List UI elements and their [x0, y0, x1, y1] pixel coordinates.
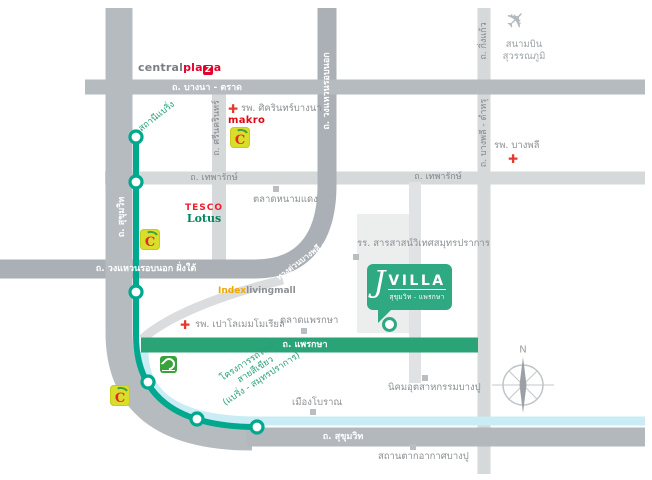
bts-station-icon — [130, 176, 142, 188]
central-plaza-text-red2: a — [214, 61, 222, 74]
central-plaza-text-red: pla — [183, 61, 203, 74]
central-plaza-text: central — [138, 61, 183, 74]
airport-label-line2: สุวรรณภูมิ — [489, 51, 559, 63]
road-label-sukhumvit-bottom: ถ. สุขุมวิท — [323, 432, 364, 442]
green-brand-underline — [162, 370, 175, 371]
landmark-marker — [301, 328, 307, 334]
big-c-store-icon: C — [140, 229, 160, 250]
makro-logo: makro — [228, 115, 265, 126]
road-label-bangna-trat: ถ. บางนา - ตราด — [172, 83, 242, 93]
red-cross-icon: ✚ — [508, 153, 518, 165]
namdaeng-market-label: ตลาดหนามแดง — [253, 195, 318, 206]
road-label-outer-ring-south: ถ. วงแหวนรอบนอก ฝั่งใต้ — [96, 264, 196, 274]
bts-station-icon — [142, 376, 154, 388]
central-plaza-logo: centralplaZa — [138, 61, 221, 75]
landmark-marker — [422, 375, 428, 381]
bts-station-icon — [130, 286, 142, 298]
airport-label-line1: สนามบิน — [489, 39, 559, 51]
red-cross-icon: ✚ — [228, 103, 238, 115]
road-label-kingkaew: ถ. กิ่งแก้ว — [479, 22, 489, 59]
jvilla-logo-subtitle: สุขุมวิท - แพรกษา — [389, 292, 444, 302]
index-text: Index — [218, 286, 246, 296]
tesco-lotus-logo: TESCO Lotus — [180, 204, 228, 224]
bts-station-icon — [130, 131, 142, 143]
compass-rose-icon — [488, 354, 558, 416]
red-cross-icon: ✚ — [180, 319, 190, 331]
jvilla-logo-textcol: VILLA สุขุมวิท - แพรกษา — [388, 274, 445, 302]
road-label-outer-ring: ถ. วงแหวนรอบนอก — [322, 52, 332, 129]
road-label-theparak-left: ถ. เทพารักษ์ — [190, 173, 237, 183]
jvilla-logo-bubble: J VILLA สุขุมวิท - แพรกษา — [367, 264, 452, 310]
jvilla-logo-name: VILLA — [388, 274, 445, 290]
ancient-city-label: เมืองโบราณ — [292, 398, 342, 409]
sikarin-hospital-label: รพ. ศิครินทร์บางนา — [241, 104, 322, 115]
livingmall-text: livingmall — [246, 286, 296, 296]
road-label-bangphli-tamru: ถ. บางพลี - ตำหรุ — [479, 99, 489, 167]
road-outer-ring — [0, 8, 327, 269]
central-plaza-z-icon: Z — [203, 65, 213, 75]
big-c-store-icon: C — [110, 385, 130, 406]
landmark-marker — [310, 409, 316, 415]
index-livingmall-logo: Indexlivingmall — [218, 286, 296, 296]
phraeksa-market-label: ตลาดแพรกษา — [280, 316, 338, 327]
road-label-srinakarin: ถ. ศรีนครินทร์ — [212, 100, 222, 156]
jvilla-location-pin — [382, 317, 397, 332]
bangphli-hospital-label: รพ. บางพลี — [494, 141, 540, 152]
bangpu-industrial-label: นิคมอุตสาหกรรมบางปู — [388, 383, 481, 394]
location-map: ถ. บางนา - ตราด ถ. ศรีนครินทร์ ถ. เทพารั… — [0, 0, 652, 480]
road-label-theparak-right: ถ. เทพารักษ์ — [414, 172, 461, 182]
landmark-marker — [410, 444, 416, 450]
sarasas-school-label: รร. สารสาสน์วิเทศสมุทรปราการ — [357, 239, 490, 250]
paolo-hospital-label: รพ. เปาโลเมมโมเรียล — [195, 320, 285, 331]
lotus-text: Lotus — [180, 213, 228, 224]
green-brand-icon — [160, 356, 177, 373]
bts-station-icon — [251, 421, 263, 433]
jvilla-logo-j: J — [373, 268, 385, 298]
landmark-marker — [353, 254, 359, 260]
landmark-marker — [273, 186, 279, 192]
road-label-sukhumvit-left: ถ. สุขุมวิท — [117, 197, 127, 238]
big-c-store-icon: C — [230, 127, 250, 148]
airport-label: สนามบิน สุวรรณภูมิ — [489, 39, 559, 63]
bangpu-recreation-label: สถานตากอากาศบางปู — [378, 452, 469, 463]
